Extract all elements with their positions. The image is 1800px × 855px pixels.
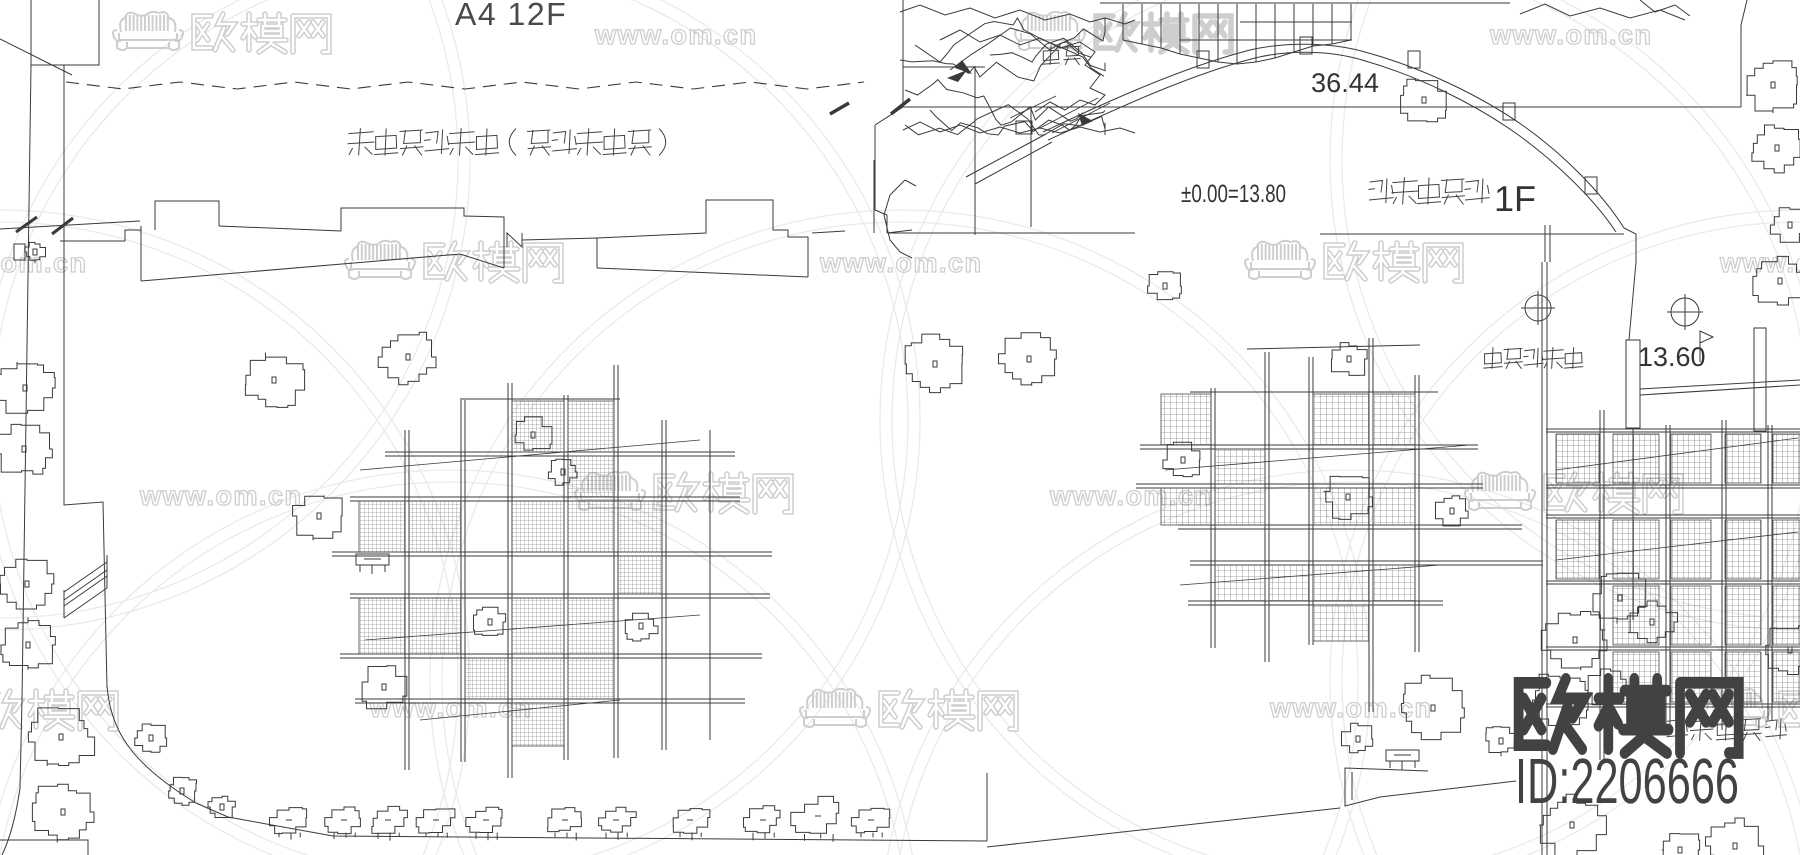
svg-text:1F: 1F (1494, 178, 1536, 219)
svg-text:www.om.cn: www.om.cn (594, 20, 758, 50)
svg-text:www.om.cn: www.om.cn (0, 248, 88, 278)
svg-text:±0.00=13.80: ±0.00=13.80 (1181, 180, 1286, 208)
svg-text:36.44: 36.44 (1311, 68, 1379, 98)
svg-text:www.om.cn: www.om.cn (1489, 20, 1653, 50)
svg-text:www.om.cn: www.om.cn (1269, 693, 1433, 723)
svg-text:ID:2206666: ID:2206666 (1515, 745, 1739, 817)
svg-text:A4 12F: A4 12F (455, 0, 567, 32)
svg-text:13.60: 13.60 (1638, 342, 1706, 372)
svg-text:www.om.cn: www.om.cn (1719, 248, 1800, 278)
svg-text:www.om.cn: www.om.cn (139, 481, 303, 511)
